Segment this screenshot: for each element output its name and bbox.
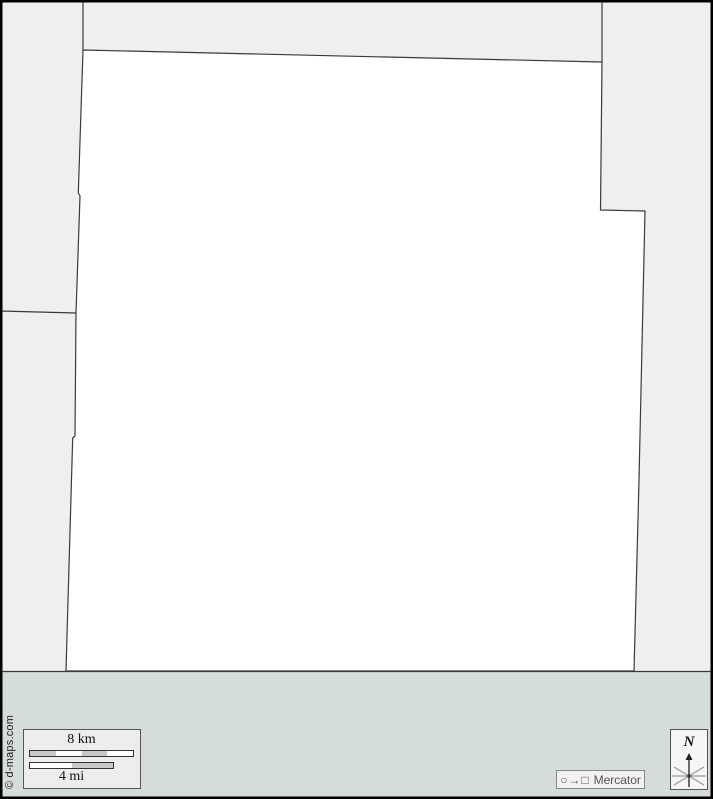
km-bar-segment bbox=[30, 751, 56, 756]
km-scale-group: 8 km bbox=[29, 732, 134, 757]
main-region-shape bbox=[66, 50, 645, 671]
compass-center-dot bbox=[687, 774, 690, 777]
north-arrow-icon bbox=[671, 751, 707, 789]
km-bar-segment bbox=[107, 751, 133, 756]
north-arrow-head bbox=[686, 753, 693, 760]
projection-symbols-icon: ○→□ bbox=[560, 773, 590, 787]
mi-scale-bar bbox=[29, 762, 114, 769]
map-drawing bbox=[0, 0, 713, 799]
mi-bar-segment bbox=[30, 763, 72, 768]
copyright-text: © d-maps.com bbox=[4, 715, 16, 789]
mi-scale-group: 4 mi bbox=[29, 762, 114, 785]
map-canvas: 8 km 4 mi © d-maps.com ○→□ Mercator N bbox=[0, 0, 713, 799]
scale-bar-box: 8 km 4 mi bbox=[23, 729, 141, 789]
km-bar-segment bbox=[56, 751, 82, 756]
scale-km-label: 8 km bbox=[29, 732, 134, 748]
km-scale-bar bbox=[29, 750, 134, 757]
scale-mi-label: 4 mi bbox=[29, 769, 114, 785]
km-bar-segment bbox=[82, 751, 108, 756]
projection-box: ○→□ Mercator bbox=[556, 770, 645, 789]
compass-n-label: N bbox=[671, 734, 707, 750]
mi-bar-segment bbox=[72, 763, 114, 768]
compass-box: N bbox=[670, 729, 708, 790]
projection-label: Mercator bbox=[594, 773, 641, 787]
